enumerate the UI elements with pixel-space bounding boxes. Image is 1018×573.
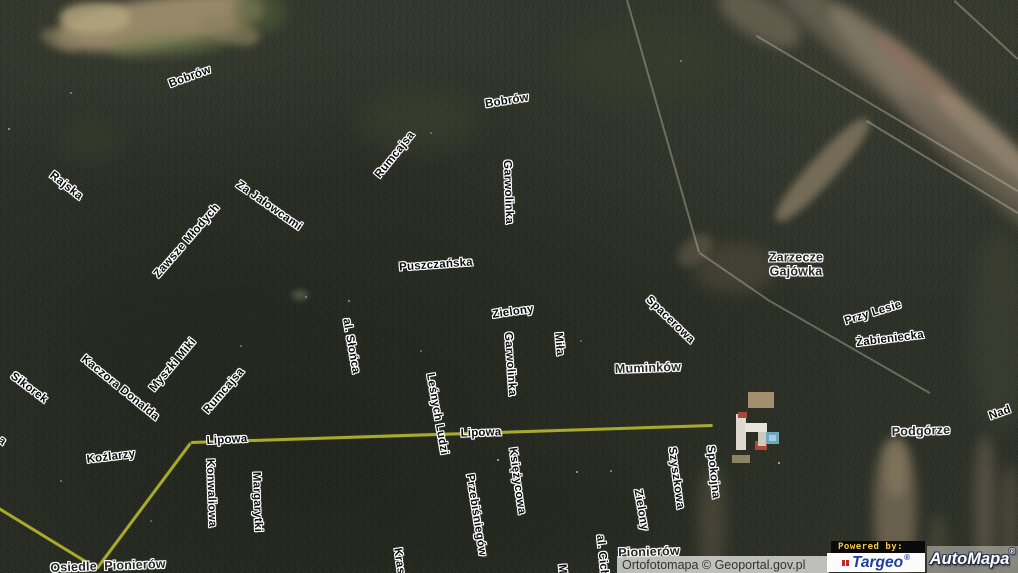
street-label: M [556, 564, 569, 573]
attribution-text: Ortofotomapa © Geoportal.gov.pl [622, 558, 805, 572]
street-label: Garwolinka [502, 332, 518, 397]
street-label: a [0, 434, 8, 447]
building-feature [732, 455, 750, 463]
street-label: Szyszkowa [666, 446, 687, 510]
targeo-wordmark: Targeo [852, 554, 903, 572]
map-canvas[interactable]: Ortofotomapa © Geoportal.gov.pl Powered … [0, 0, 1018, 573]
street-label: Kras [391, 547, 407, 573]
clearing-speckle [60, 480, 62, 482]
street-label: Konwaliowa [204, 459, 218, 528]
building-feature [748, 392, 774, 408]
street-label: Za Jałowcami [234, 179, 304, 233]
clearing-speckle [70, 92, 72, 94]
automapa-registered-mark: ® [1009, 548, 1015, 556]
place-label: Osiedle Pionierów [50, 557, 166, 573]
terrain-patch [60, 120, 120, 160]
clearing-speckle [430, 132, 432, 134]
building-feature [738, 412, 747, 418]
street-label: Miła [552, 332, 566, 356]
street-label: Zawsze Młodych [152, 202, 222, 281]
terrain-patch [60, 3, 130, 33]
building-feature [736, 414, 746, 450]
clearing-speckle [8, 128, 10, 130]
street-label: Spacerowa [643, 294, 696, 346]
terrain-patch [560, 20, 720, 100]
terrain-patch [767, 111, 877, 229]
building-feature [758, 432, 766, 446]
street-label: Puszczańska [399, 256, 473, 273]
street-label: Bobrów [484, 92, 529, 111]
terrain-patch [970, 230, 1018, 430]
targeo-logo[interactable]: Targeo ® [827, 553, 925, 572]
clearing-speckle [420, 350, 422, 352]
forest-trail [954, 0, 1018, 59]
street-label: Rajska [47, 169, 85, 202]
clearing-speckle [150, 520, 152, 522]
targeo-quote-icon [842, 559, 851, 567]
clearing-speckle [778, 462, 780, 464]
automapa-logo[interactable]: AutoMapa ® [927, 546, 1018, 573]
clearing-speckle [240, 345, 242, 347]
street-label: Leśnych Ludzi [424, 372, 450, 455]
street-label: Lipowa [460, 426, 501, 439]
clearing-speckle [305, 296, 307, 298]
street-label: Przy Lesie [843, 299, 903, 328]
road-lipowa [191, 424, 713, 444]
terrain-patch [235, 0, 285, 32]
clearing-speckle [610, 470, 612, 472]
street-label: Bobrów [167, 64, 212, 90]
street-label: Żabieniecka [855, 329, 924, 349]
street-label: Zielony [492, 303, 535, 321]
targeo-registered-mark: ® [904, 554, 910, 562]
street-label: al. Słońca [340, 318, 362, 375]
clearing-speckle [580, 340, 582, 342]
building-feature [769, 435, 776, 441]
building-feature [745, 423, 767, 432]
place-label: Muminków [615, 360, 682, 377]
street-label: Lipowa [206, 433, 247, 447]
powered-by-text: Powered by: [838, 542, 903, 552]
clearing-speckle [348, 300, 350, 302]
terrain-patch [292, 290, 308, 300]
clearing-speckle [497, 459, 499, 461]
terrain-patch [360, 90, 480, 150]
clearing-speckle [576, 471, 578, 473]
street-label: Margarytki [250, 472, 264, 533]
street-label: Koźlarzy [86, 448, 136, 466]
place-label: Zarzecze Gajówka [769, 251, 823, 280]
powered-by-badge: Powered by: [831, 541, 925, 553]
street-label: Garwolinka [501, 160, 515, 224]
automapa-wordmark: AutoMapa [930, 550, 1010, 569]
terrain-patch [884, 438, 908, 498]
attribution-bar: Ortofotomapa © Geoportal.gov.pl [617, 556, 829, 573]
street-label: Sikorek [8, 370, 50, 405]
clearing-speckle [680, 60, 682, 62]
place-label: Podgórze [891, 423, 950, 439]
